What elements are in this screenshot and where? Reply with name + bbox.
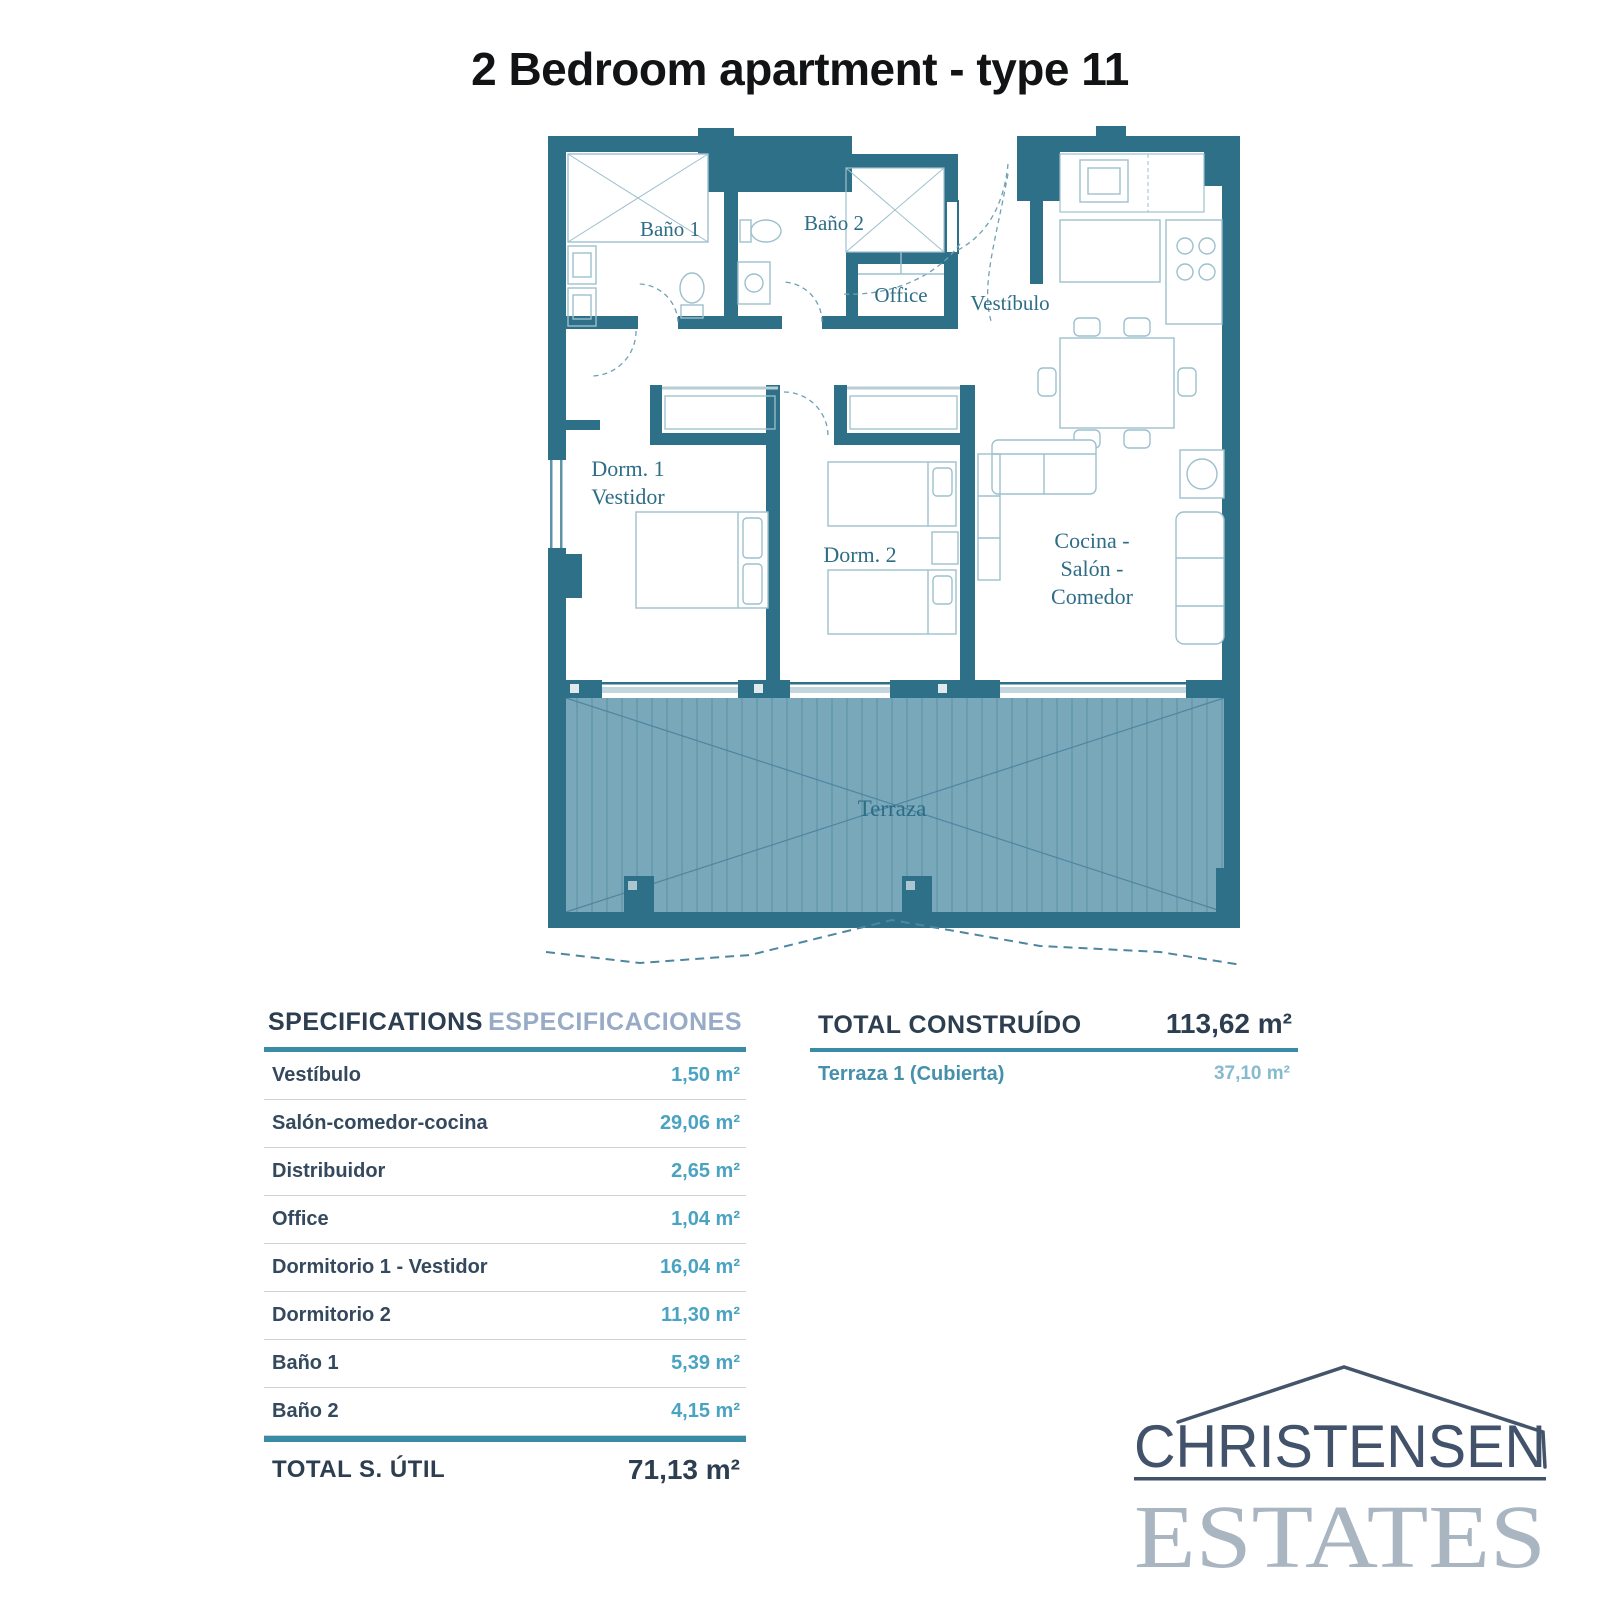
row-value: 1,04 m² [671, 1208, 740, 1231]
entrance-door [946, 201, 958, 253]
row-label: Terraza 1 (Cubierta) [818, 1063, 1004, 1086]
specifications-header-en: SPECIFICATIONS [268, 1008, 483, 1037]
row-value: 1,50 m² [671, 1064, 740, 1087]
logo-name-top: CHRISTENSEN [1134, 1413, 1546, 1480]
flyer-page: 2 Bedroom apartment - type 11 [0, 0, 1600, 1600]
floor-plan: Baño 1 Baño 2 Office Vestíbulo Dorm. 1 V… [540, 124, 1250, 974]
table-row: Office 1,04 m² [264, 1196, 746, 1244]
floor-plan-drawing: Baño 1 Baño 2 Office Vestíbulo Dorm. 1 V… [540, 124, 1250, 974]
total-value: 71,13 m² [628, 1454, 740, 1486]
row-value: 29,06 m² [660, 1112, 740, 1135]
construido-table: TOTAL CONSTRUÍDO 113,62 m² Terraza 1 (Cu… [810, 1008, 1298, 1096]
specifications-header: SPECIFICATIONS ESPECIFICACIONES [264, 1008, 746, 1037]
total-label: TOTAL S. ÚTIL [272, 1456, 445, 1484]
row-label: Dormitorio 1 - Vestidor [272, 1256, 488, 1279]
table-row: Baño 1 5,39 m² [264, 1340, 746, 1388]
row-label: Distribuidor [272, 1160, 385, 1183]
room-label-office: Office [874, 283, 927, 307]
row-label: Salón-comedor-cocina [272, 1112, 488, 1135]
row-label: Vestíbulo [272, 1064, 361, 1087]
row-value: 2,65 m² [671, 1160, 740, 1183]
row-value: 11,30 m² [661, 1304, 740, 1327]
row-value: 16,04 m² [660, 1256, 740, 1279]
room-label-cocina-line2: Salón - [1061, 556, 1124, 581]
row-value: 4,15 m² [671, 1400, 740, 1423]
room-label-vestibulo: Vestíbulo [970, 291, 1049, 315]
table-row: Dormitorio 1 - Vestidor 16,04 m² [264, 1244, 746, 1292]
room-label-dorm2: Dorm. 2 [823, 542, 896, 567]
room-label-cocina-line1: Cocina - [1054, 528, 1129, 553]
room-label-terraza: Terraza [858, 796, 927, 821]
table-row: Vestíbulo 1,50 m² [264, 1052, 746, 1100]
construido-header-label: TOTAL CONSTRUÍDO [818, 1011, 1082, 1040]
row-value: 5,39 m² [671, 1352, 740, 1375]
table-row: Distribuidor 2,65 m² [264, 1148, 746, 1196]
row-label: Dormitorio 2 [272, 1304, 391, 1327]
table-row: Dormitorio 2 11,30 m² [264, 1292, 746, 1340]
room-label-dorm1-line1: Dorm. 1 [591, 456, 664, 481]
specifications-header-es: ESPECIFICACIONES [488, 1008, 742, 1037]
construido-header: TOTAL CONSTRUÍDO 113,62 m² [810, 1008, 1298, 1040]
logo-name-bottom: ESTATES [1134, 1488, 1546, 1578]
construido-header-value: 113,62 m² [1166, 1008, 1292, 1040]
total-row: TOTAL S. ÚTIL 71,13 m² [264, 1442, 746, 1498]
agency-logo: CHRISTENSEN ESTATES [1126, 1360, 1558, 1578]
logo-graphic: CHRISTENSEN ESTATES [1126, 1360, 1558, 1578]
row-label: Baño 2 [272, 1400, 339, 1423]
room-label-bano2: Baño 2 [804, 211, 864, 235]
table-row: Salón-comedor-cocina 29,06 m² [264, 1100, 746, 1148]
room-label-bano1: Baño 1 [640, 217, 700, 241]
row-label: Baño 1 [272, 1352, 339, 1375]
page-title: 2 Bedroom apartment - type 11 [0, 42, 1600, 96]
row-label: Office [272, 1208, 329, 1231]
specifications-table: SPECIFICATIONS ESPECIFICACIONES Vestíbul… [264, 1008, 746, 1498]
room-label-dorm1-line2: Vestidor [591, 484, 665, 509]
row-value: 37,10 m² [1214, 1063, 1290, 1085]
table-row: Terraza 1 (Cubierta) 37,10 m² [810, 1052, 1298, 1096]
logo-underline [1134, 1477, 1546, 1481]
room-label-cocina-line3: Comedor [1051, 584, 1134, 609]
table-row: Baño 2 4,15 m² [264, 1388, 746, 1436]
